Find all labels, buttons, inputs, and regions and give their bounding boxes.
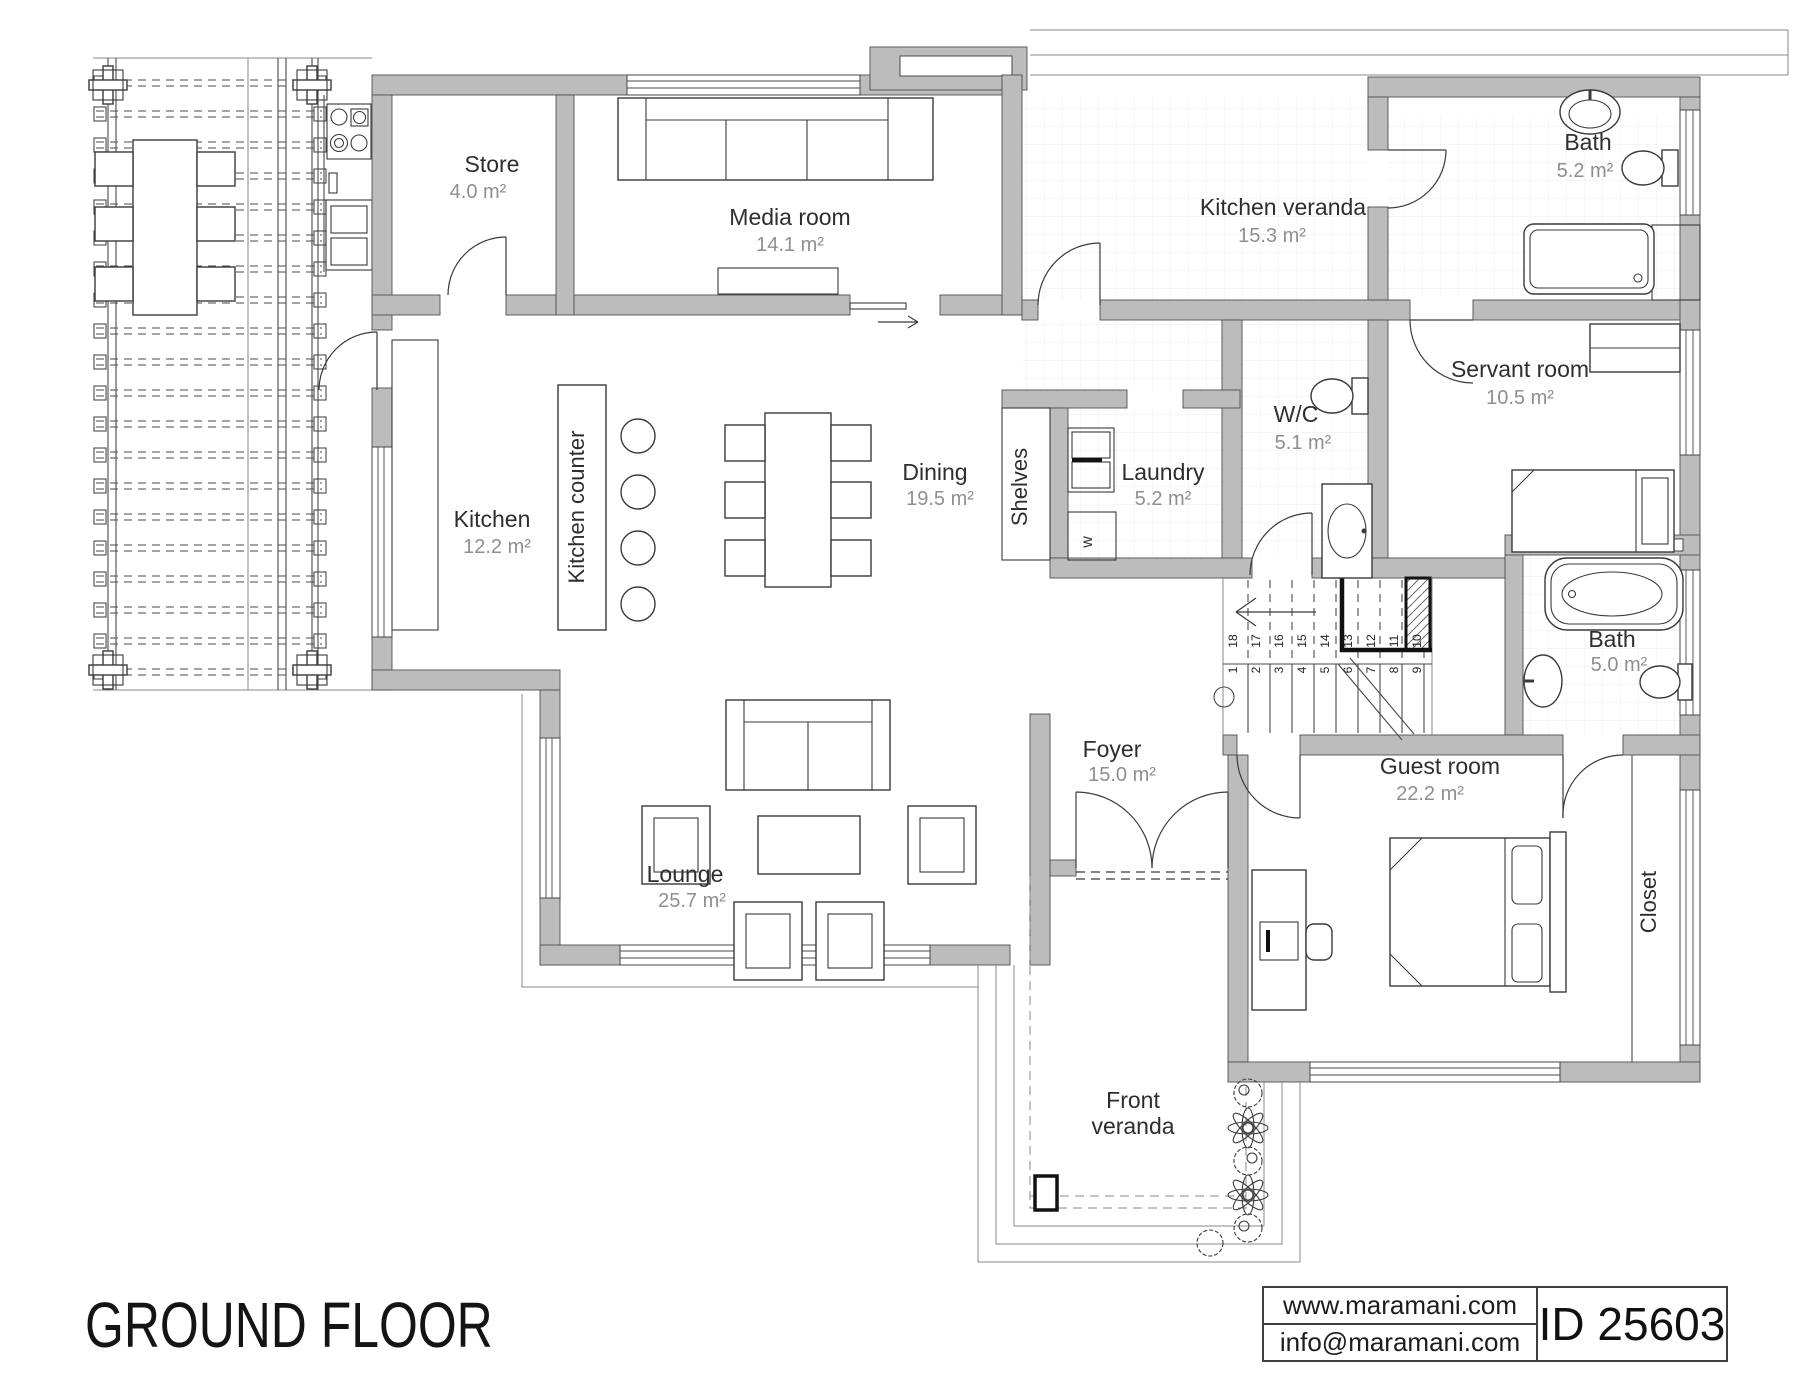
stair-direction-arrow [1236, 598, 1316, 626]
coffee-table [758, 816, 860, 874]
page-title: GROUND FLOOR [85, 1288, 493, 1362]
room-area-wc: 5.1 m² [1275, 432, 1332, 454]
stair-tread-number: 12 [1364, 634, 1378, 648]
room-area-bath-top: 5.2 m² [1557, 160, 1614, 182]
window [372, 447, 392, 637]
bar-stools [621, 419, 655, 621]
washbasin-icon [1560, 90, 1620, 134]
toilet-icon [1311, 378, 1368, 414]
stair-tread-number: 14 [1318, 634, 1332, 648]
kitchen-wall-counter [392, 340, 438, 630]
plan-id: ID 25603 [1538, 1288, 1726, 1360]
stair-tread-number: 18 [1226, 634, 1240, 648]
pergola-post [89, 66, 127, 104]
room-area-laundry: 5.2 m² [1135, 488, 1192, 510]
door-arc [319, 332, 377, 390]
door-arc [448, 237, 506, 295]
room-area-store: 4.0 m² [450, 181, 507, 203]
outdoor-dining-table [95, 140, 235, 315]
stair-tread-number: 15 [1295, 634, 1309, 648]
label-shelves: Shelves [1007, 448, 1032, 526]
stair-tread-number: 6 [1341, 666, 1355, 673]
stair-numbers: 181716151413121110123456789 [1226, 634, 1424, 673]
stair-tread-number: 7 [1364, 666, 1378, 673]
stair-tread-number: 2 [1249, 666, 1263, 673]
room-label-kitchen: Kitchen [454, 506, 531, 532]
room-label-media-room: Media room [729, 204, 850, 230]
stove-icon [327, 104, 371, 159]
room-label-kitchen-veranda: Kitchen veranda [1200, 194, 1366, 220]
stair-tread-number: 4 [1295, 666, 1309, 673]
room-area-servant-room: 10.5 m² [1486, 387, 1554, 409]
room-area-lounge: 25.7 m² [658, 890, 726, 912]
toilet-icon [1640, 664, 1692, 700]
outdoor-kitchen-counter [324, 95, 372, 272]
sliding-door-arrow [850, 303, 918, 328]
bathtub-icon [1545, 558, 1683, 630]
veranda-post [1035, 1176, 1057, 1210]
stair-tread-number: 9 [1410, 666, 1424, 673]
label-kitchen-counter: Kitchen counter [564, 431, 589, 584]
washbasin-icon [1322, 484, 1372, 578]
room-label-dining: Dining [902, 459, 967, 485]
info-box: www.maramani.com info@maramani.com ID 25… [1262, 1286, 1728, 1362]
window [1680, 330, 1700, 455]
label-washer: w [1079, 536, 1096, 549]
stair-tread-number: 17 [1249, 634, 1263, 648]
room-label-store: Store [465, 151, 520, 177]
plant-icon [1234, 1079, 1262, 1107]
plant-icon [1197, 1230, 1223, 1256]
room-area-dining: 19.5 m² [906, 488, 974, 510]
lounge-sofa [726, 700, 890, 790]
tv-cabinet [718, 268, 838, 294]
desk [1252, 870, 1332, 1010]
dining-table [725, 413, 871, 587]
room-label-foyer: Foyer [1083, 736, 1142, 762]
room-label-front-veranda: Front [1106, 1087, 1160, 1113]
door-arc [1563, 755, 1623, 818]
label-closet: Closet [1636, 871, 1661, 933]
pergola-post [293, 66, 331, 104]
room-area-foyer: 15.0 m² [1088, 764, 1156, 786]
armchair [908, 806, 976, 884]
pergola-post [293, 651, 331, 689]
counter-item [329, 173, 337, 193]
stair-tread-number: 13 [1341, 634, 1355, 648]
window [1680, 110, 1700, 215]
stair-tread-number: 8 [1387, 666, 1401, 673]
plant-icon [1228, 1175, 1268, 1215]
room-area-guest-room: 22.2 m² [1396, 783, 1464, 805]
sink-icon [326, 200, 372, 270]
floor-plan-drawing: 181716151413121110123456789 [0, 0, 1800, 1400]
window [627, 75, 860, 95]
room-label-bath-top: Bath [1564, 129, 1611, 155]
stair-risers [1248, 580, 1424, 733]
room-label-guest-room: Guest room [1380, 753, 1500, 779]
washbasin-icon [1524, 655, 1562, 707]
stair-tread-number: 3 [1272, 666, 1286, 673]
plant-icon [1234, 1147, 1262, 1175]
pergola [89, 58, 331, 690]
front-double-door [1076, 792, 1228, 879]
plant-icon [1228, 1108, 1268, 1148]
stair-tread-number: 11 [1387, 634, 1401, 647]
stair-tread-number: 16 [1272, 634, 1286, 648]
lounge-chair [816, 902, 884, 980]
window [1310, 1062, 1560, 1082]
room-area-media-room: 14.1 m² [756, 234, 824, 256]
plant-icon [1234, 1214, 1262, 1242]
website-link[interactable]: www.maramani.com [1264, 1288, 1536, 1325]
window [540, 738, 560, 898]
room-label-lounge: Lounge [647, 861, 724, 887]
window [1680, 790, 1700, 1045]
stairs: 181716151413121110123456789 [1214, 578, 1432, 740]
stair-tread-number: 1 [1226, 666, 1240, 673]
lounge-chair [734, 902, 802, 980]
room-area-kitchen: 12.2 m² [463, 536, 531, 558]
pergola-post [89, 651, 127, 689]
room-area-kitchen-veranda: 15.3 m² [1238, 225, 1306, 247]
stair-newel [1214, 687, 1234, 707]
toilet-icon [1622, 150, 1678, 186]
room-label-wc: W/C [1274, 401, 1319, 427]
double-bed [1390, 832, 1566, 992]
room-label-servant-room: Servant room [1451, 356, 1589, 382]
room-label-bath-mid: Bath [1588, 626, 1635, 652]
bathtub-icon [1524, 224, 1654, 294]
room-label-laundry: Laundry [1121, 459, 1205, 485]
media-sofa [618, 98, 933, 180]
stair-tread-number: 5 [1318, 666, 1332, 673]
stair-tread-number: 10 [1410, 634, 1424, 648]
wardrobe [1590, 324, 1680, 372]
room-area-bath-mid: 5.0 m² [1591, 654, 1648, 676]
single-bed [1512, 470, 1674, 552]
email-link[interactable]: info@maramani.com [1264, 1325, 1536, 1360]
room-label-front-veranda: veranda [1091, 1113, 1174, 1139]
